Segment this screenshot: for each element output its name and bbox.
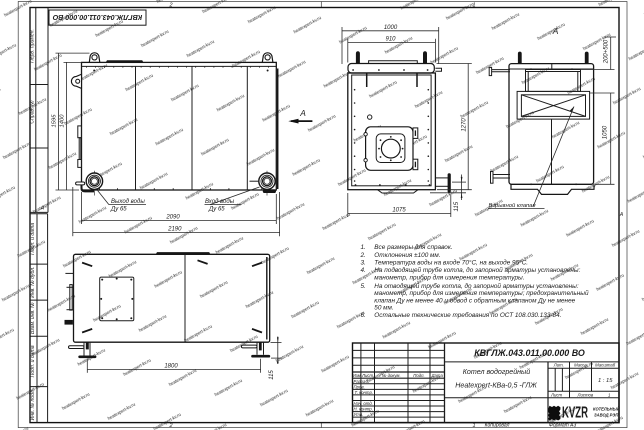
svg-text:1.: 1. bbox=[361, 244, 366, 251]
svg-text:1075: 1075 bbox=[392, 208, 406, 214]
svg-text:Лист: Лист bbox=[361, 373, 373, 378]
svg-text:115: 115 bbox=[269, 370, 275, 380]
svg-text:Лист: Лист bbox=[550, 393, 562, 398]
svg-text:1050: 1050 bbox=[602, 125, 608, 139]
svg-text:1400: 1400 bbox=[60, 114, 66, 128]
svg-text:Копировал: Копировал bbox=[485, 423, 510, 429]
svg-text:Утв.: Утв. bbox=[354, 412, 364, 417]
svg-text:А: А bbox=[299, 108, 306, 118]
svg-text:1 : 15: 1 : 15 bbox=[598, 378, 613, 384]
svg-text:50 мм.: 50 мм. bbox=[374, 305, 393, 312]
svg-text:1270: 1270 bbox=[461, 118, 467, 132]
svg-text:Котел водогрейный: Котел водогрейный bbox=[463, 368, 531, 376]
svg-text:3.: 3. bbox=[361, 259, 366, 266]
svg-text:Формат А3: Формат А3 bbox=[549, 423, 577, 429]
svg-text:Листов: Листов bbox=[577, 393, 594, 398]
svg-text:А: А bbox=[40, 206, 45, 212]
svg-text:Все размеры для справок.: Все размеры для справок. bbox=[374, 243, 452, 251]
svg-text:2.: 2. bbox=[360, 252, 366, 259]
svg-text:Инв. № дубл.: Инв. № дубл. bbox=[30, 266, 36, 297]
svg-text:910: 910 bbox=[385, 37, 396, 43]
svg-text:КВГЛЖ.043.011.00.000 ВО: КВГЛЖ.043.011.00.000 ВО bbox=[52, 13, 142, 22]
svg-text:2: 2 bbox=[168, 423, 172, 429]
svg-text:Т. контр.: Т. контр. bbox=[355, 390, 374, 395]
svg-text:На подводящей трубе котла, до: На подводящей трубе котла, до запорной а… bbox=[374, 266, 580, 274]
svg-text:Ду 65: Ду 65 bbox=[208, 206, 225, 212]
svg-text:Выход воды: Выход воды bbox=[111, 199, 145, 205]
svg-text:Ду 65: Ду 65 bbox=[110, 206, 127, 212]
svg-text:Дата: Дата bbox=[431, 373, 444, 378]
svg-text:Лит.: Лит. bbox=[553, 363, 564, 368]
svg-text:Подп. и дата: Подп. и дата bbox=[30, 223, 36, 255]
svg-text:манометр, прибор для измерения: манометр, прибор для измерения температу… bbox=[374, 289, 589, 297]
svg-text:КВГЛЖ.043.011.00.000 ВО: КВГЛЖ.043.011.00.000 ВО bbox=[474, 348, 585, 358]
svg-text:Масса: Масса bbox=[574, 363, 587, 368]
svg-text:КОТЕЛЬНЫЙ: КОТЕЛЬНЫЙ bbox=[593, 407, 621, 412]
svg-text:6.: 6. bbox=[361, 312, 366, 319]
svg-text:А: А bbox=[552, 26, 559, 36]
svg-text:Остальные технические требован: Остальные технические требования по ОСТ … bbox=[374, 311, 561, 319]
svg-text:1800: 1800 bbox=[164, 363, 178, 369]
svg-text:Справ. №: Справ. № bbox=[29, 100, 35, 124]
svg-text:Изм: Изм bbox=[353, 373, 361, 378]
svg-text:200+500: 200+500 bbox=[604, 39, 610, 64]
svg-text:4.: 4. bbox=[361, 267, 366, 274]
svg-text:Пров.: Пров. bbox=[354, 385, 365, 390]
svg-text:5.: 5. bbox=[361, 283, 366, 290]
svg-text:2090: 2090 bbox=[165, 214, 180, 220]
svg-text:1595: 1595 bbox=[52, 114, 58, 128]
svg-text:KVZR: KVZR bbox=[562, 405, 588, 422]
svg-text:Heatexpert-КВа-0,5 -ГЛЖ: Heatexpert-КВа-0,5 -ГЛЖ bbox=[455, 381, 537, 389]
svg-text:Отклонения ±100 мм.: Отклонения ±100 мм. bbox=[374, 252, 440, 259]
svg-text:115: 115 bbox=[454, 201, 460, 211]
svg-text:Взам. инв. №: Взам. инв. № bbox=[30, 302, 36, 334]
svg-text:Разраб.: Разраб. bbox=[354, 379, 370, 384]
svg-text:Перв. примен.: Перв. примен. bbox=[29, 29, 35, 63]
svg-text:1: 1 bbox=[472, 423, 475, 429]
svg-text:ЗАВОД РЭП: ЗАВОД РЭП bbox=[594, 413, 619, 418]
svg-text:Масштаб: Масштаб bbox=[595, 363, 616, 368]
svg-text:Подп. и дата: Подп. и дата bbox=[30, 345, 36, 377]
svg-text:Инв. № подл.: Инв. № подл. bbox=[30, 389, 36, 421]
svg-text:Нач. отд.: Нач. отд. bbox=[354, 401, 373, 406]
svg-text:2190: 2190 bbox=[167, 227, 182, 233]
svg-text:1000: 1000 bbox=[384, 25, 398, 31]
svg-text:Вход воды: Вход воды bbox=[205, 199, 235, 205]
svg-text:манометр, прибор для измерения: манометр, прибор для измерения температу… bbox=[374, 273, 524, 281]
svg-text:Взрывной клапан: Взрывной клапан bbox=[489, 202, 537, 209]
svg-text:Н. контр.: Н. контр. bbox=[354, 407, 373, 412]
svg-text:Температура воды на входе 70°С: Температура воды на входе 70°С, на выход… bbox=[374, 258, 528, 266]
svg-text:Подп.: Подп. bbox=[413, 373, 424, 378]
svg-text:№ докум.: № докум. bbox=[382, 373, 401, 378]
svg-text:клапан Ду не менее 40 и обвод: клапан Ду не менее 40 и обвод с обратным… bbox=[374, 297, 575, 305]
